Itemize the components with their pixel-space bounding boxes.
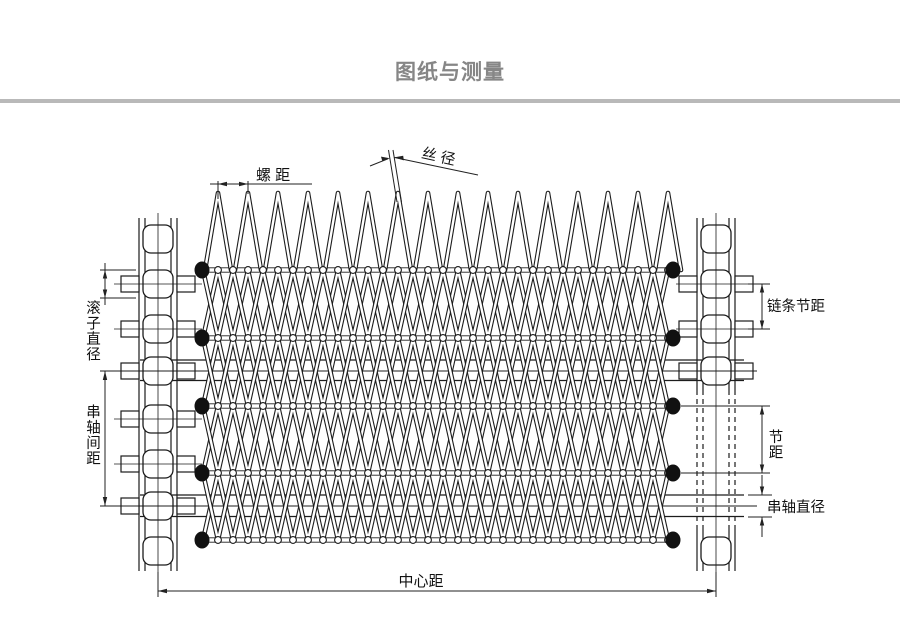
center-distance-dimension: 中心距: [158, 572, 716, 597]
rod-diameter-label: 串轴直径: [767, 499, 825, 516]
pitch-label: 节距: [769, 429, 784, 462]
rod-spacing-dimension: 串轴间距: [86, 371, 107, 506]
arrow-up: [760, 284, 764, 293]
arrow-to-wire-left: [381, 157, 390, 162]
pitch-dimension: 节距: [681, 406, 783, 473]
arrow-right: [707, 589, 716, 593]
spiral-wire-mesh: [200, 193, 681, 543]
arrow-up: [103, 371, 107, 380]
left-roller-chain: [114, 213, 202, 575]
arrow-down: [760, 321, 764, 330]
rod-diameter-dimension: 串轴直径: [748, 475, 825, 537]
spiral-pitch-label: 螺 距: [256, 167, 290, 184]
arrow-left: [218, 182, 227, 187]
right-roller-chain: [679, 213, 753, 575]
chain-pitch-dimension: 链条节距: [748, 284, 825, 329]
spiral-pitch-dimension: 螺 距: [210, 167, 312, 199]
arrow-up: [103, 270, 107, 279]
mesh-belt-technical-drawing: 螺 距 丝 径 滚子直径 串轴间距: [0, 0, 900, 644]
arrow-down-to-rod: [760, 487, 764, 496]
arrow-down: [760, 465, 764, 474]
wire-diameter-label: 丝 径: [420, 145, 457, 169]
rod-spacing-label: 串轴间距: [86, 404, 101, 468]
arrow-down: [103, 290, 107, 299]
arrow-up-to-rod: [760, 517, 764, 526]
arrow-right: [239, 182, 248, 187]
arrow-left: [158, 589, 167, 593]
center-distance-label: 中心距: [398, 573, 443, 590]
arrow-down: [103, 497, 107, 506]
arrow-up: [760, 406, 764, 415]
chain-pitch-label: 链条节距: [767, 298, 825, 315]
wire-diameter-dimension: 丝 径: [370, 145, 478, 202]
roller-diameter-label: 滚子直径: [86, 300, 101, 364]
